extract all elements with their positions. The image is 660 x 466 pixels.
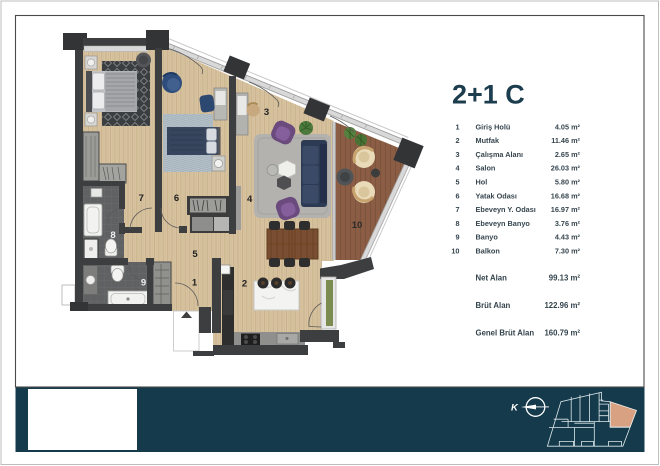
svg-text:99.13 m²: 99.13 m² xyxy=(549,274,581,283)
svg-text:8: 8 xyxy=(110,230,115,241)
svg-text:3: 3 xyxy=(455,150,459,159)
svg-text:Hol: Hol xyxy=(476,178,488,187)
svg-text:16.68 m²: 16.68 m² xyxy=(551,191,581,200)
svg-text:Banyo: Banyo xyxy=(476,233,499,242)
svg-text:26.03 m²: 26.03 m² xyxy=(551,164,581,173)
svg-text:Genel Brüt Alan: Genel Brüt Alan xyxy=(476,329,535,338)
svg-text:5: 5 xyxy=(455,178,459,187)
svg-text:Ebeveyn Banyo: Ebeveyn Banyo xyxy=(476,219,531,228)
svg-text:5.80 m²: 5.80 m² xyxy=(555,178,581,187)
svg-text:160.79 m²: 160.79 m² xyxy=(544,329,580,338)
svg-text:3.76 m²: 3.76 m² xyxy=(555,219,581,228)
svg-text:9: 9 xyxy=(141,278,146,289)
svg-text:4: 4 xyxy=(247,194,253,205)
svg-text:Ebeveyn Y. Odası: Ebeveyn Y. Odası xyxy=(476,205,536,214)
svg-text:Çalışma Alanı: Çalışma Alanı xyxy=(476,150,524,159)
svg-text:6: 6 xyxy=(174,193,179,204)
svg-text:2+1 C: 2+1 C xyxy=(452,80,525,110)
svg-text:Net Alan: Net Alan xyxy=(476,274,508,283)
svg-text:3: 3 xyxy=(264,107,269,118)
svg-text:4.43 m²: 4.43 m² xyxy=(555,233,581,242)
svg-text:11.46 m²: 11.46 m² xyxy=(551,136,580,145)
svg-text:Balkon: Balkon xyxy=(476,247,500,256)
svg-text:6: 6 xyxy=(455,191,459,200)
svg-text:10: 10 xyxy=(352,220,363,231)
svg-text:Salon: Salon xyxy=(476,164,496,173)
svg-text:1: 1 xyxy=(455,122,459,131)
svg-text:2: 2 xyxy=(242,279,247,290)
svg-text:2.65 m²: 2.65 m² xyxy=(555,150,581,159)
svg-text:7: 7 xyxy=(139,193,144,204)
svg-text:K: K xyxy=(511,403,519,414)
svg-text:8: 8 xyxy=(455,219,459,228)
svg-text:2: 2 xyxy=(455,136,459,145)
svg-text:5: 5 xyxy=(192,249,198,260)
svg-text:Brüt Alan: Brüt Alan xyxy=(476,301,511,310)
svg-text:7.30 m²: 7.30 m² xyxy=(555,247,581,256)
svg-text:16.97 m²: 16.97 m² xyxy=(551,205,581,214)
svg-text:10: 10 xyxy=(451,247,459,256)
svg-text:9: 9 xyxy=(455,233,459,242)
svg-text:7: 7 xyxy=(455,205,459,214)
svg-text:Mutfak: Mutfak xyxy=(476,136,500,145)
svg-text:Giriş Holü: Giriş Holü xyxy=(476,122,511,131)
svg-text:1: 1 xyxy=(192,278,198,289)
svg-text:4.05 m²: 4.05 m² xyxy=(555,122,581,131)
svg-text:Yatak Odası: Yatak Odası xyxy=(476,191,517,200)
svg-text:122.96 m²: 122.96 m² xyxy=(544,301,580,310)
